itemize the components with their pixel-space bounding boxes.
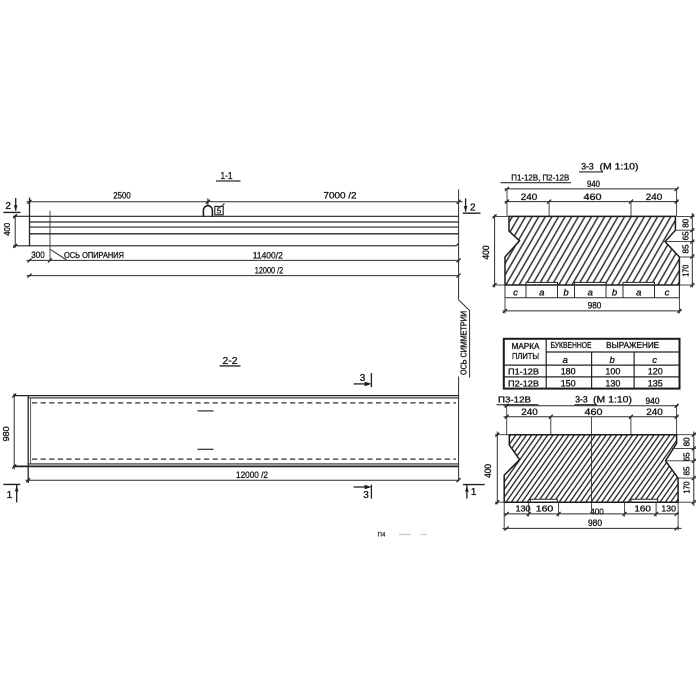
svg-text:2-2: 2-2	[223, 355, 238, 367]
svg-text:460: 460	[585, 407, 603, 417]
svg-text:b: b	[612, 288, 617, 299]
svg-text:85: 85	[682, 244, 691, 254]
svg-text:3-3: 3-3	[581, 162, 594, 172]
svg-text:130: 130	[516, 503, 531, 513]
svg-text:80: 80	[682, 437, 691, 447]
svg-text:2: 2	[470, 202, 476, 213]
svg-text:940: 940	[646, 396, 660, 406]
svg-text:100: 100	[605, 367, 620, 377]
svg-text:980: 980	[588, 518, 602, 528]
svg-text:П4: П4	[378, 533, 386, 539]
svg-text:c: c	[665, 288, 670, 299]
svg-text:130: 130	[605, 379, 620, 389]
svg-text:1: 1	[471, 487, 477, 498]
svg-text:7000 /2: 7000 /2	[324, 190, 357, 200]
svg-text:400: 400	[590, 507, 604, 517]
svg-text:3-3: 3-3	[575, 394, 588, 404]
svg-text:400: 400	[483, 464, 493, 478]
svg-text:b: b	[563, 288, 568, 299]
svg-text:940: 940	[587, 179, 600, 189]
svg-text:130: 130	[661, 503, 676, 513]
svg-text:a: a	[563, 355, 568, 366]
svg-text:300: 300	[31, 250, 45, 260]
svg-text:65: 65	[682, 452, 691, 462]
svg-text:160: 160	[634, 503, 651, 513]
svg-text:240: 240	[521, 192, 538, 202]
svg-text:a: a	[636, 288, 641, 299]
svg-text:85: 85	[682, 466, 691, 476]
svg-text:11400/2: 11400/2	[253, 251, 283, 262]
svg-text:160: 160	[536, 503, 554, 513]
svg-text:180: 180	[561, 367, 576, 377]
svg-text:400: 400	[2, 223, 12, 236]
svg-text:12000 /2: 12000 /2	[255, 266, 284, 277]
svg-text:c: c	[652, 355, 657, 366]
svg-text:3: 3	[360, 373, 366, 384]
svg-text:980: 980	[588, 300, 602, 310]
svg-text:2: 2	[5, 201, 11, 212]
svg-text:170: 170	[682, 481, 691, 494]
svg-text:(М 1:10): (М 1:10)	[600, 162, 639, 172]
svg-text:ВЫРАЖЕНИЕ: ВЫРАЖЕНИЕ	[606, 340, 659, 350]
svg-text:65: 65	[682, 231, 691, 241]
svg-text:240: 240	[646, 407, 663, 417]
svg-text:a: a	[588, 288, 593, 299]
svg-text:80: 80	[682, 218, 691, 228]
svg-text:(М 1:10): (М 1:10)	[593, 394, 632, 404]
svg-text:П3-12В: П3-12В	[498, 395, 531, 405]
svg-text:ПЛИТЫ: ПЛИТЫ	[512, 351, 539, 361]
svg-text:c: c	[513, 288, 518, 299]
svg-text:МАРКА: МАРКА	[512, 341, 540, 351]
svg-text:1: 1	[7, 490, 13, 501]
svg-text:400: 400	[481, 245, 491, 259]
svg-text:П2-12В: П2-12В	[508, 379, 539, 389]
svg-text:135: 135	[648, 379, 663, 389]
svg-text:240: 240	[646, 192, 663, 202]
svg-text:ОСЬ СИММЕТРИИ: ОСЬ СИММЕТРИИ	[459, 311, 468, 375]
svg-text:БУКВЕННОЕ: БУКВЕННОЕ	[551, 340, 592, 350]
svg-text:120: 120	[648, 367, 663, 377]
svg-text:5: 5	[217, 206, 222, 215]
svg-text:2500: 2500	[113, 191, 131, 201]
svg-text:460: 460	[584, 192, 602, 202]
svg-text:240: 240	[521, 407, 538, 417]
svg-text:150: 150	[561, 379, 576, 389]
svg-text:b: b	[609, 355, 614, 366]
svg-text:П1-12В, П2-12В: П1-12В, П2-12В	[511, 172, 569, 182]
svg-text:170: 170	[682, 264, 691, 277]
svg-text:a: a	[539, 288, 544, 299]
svg-text:ОСЬ ОПИРАНИЯ: ОСЬ ОПИРАНИЯ	[64, 251, 124, 260]
svg-text:П1-12В: П1-12В	[508, 367, 539, 377]
svg-text:3: 3	[363, 490, 369, 501]
svg-text:980: 980	[1, 426, 11, 441]
svg-text:12000 /2: 12000 /2	[236, 470, 268, 481]
